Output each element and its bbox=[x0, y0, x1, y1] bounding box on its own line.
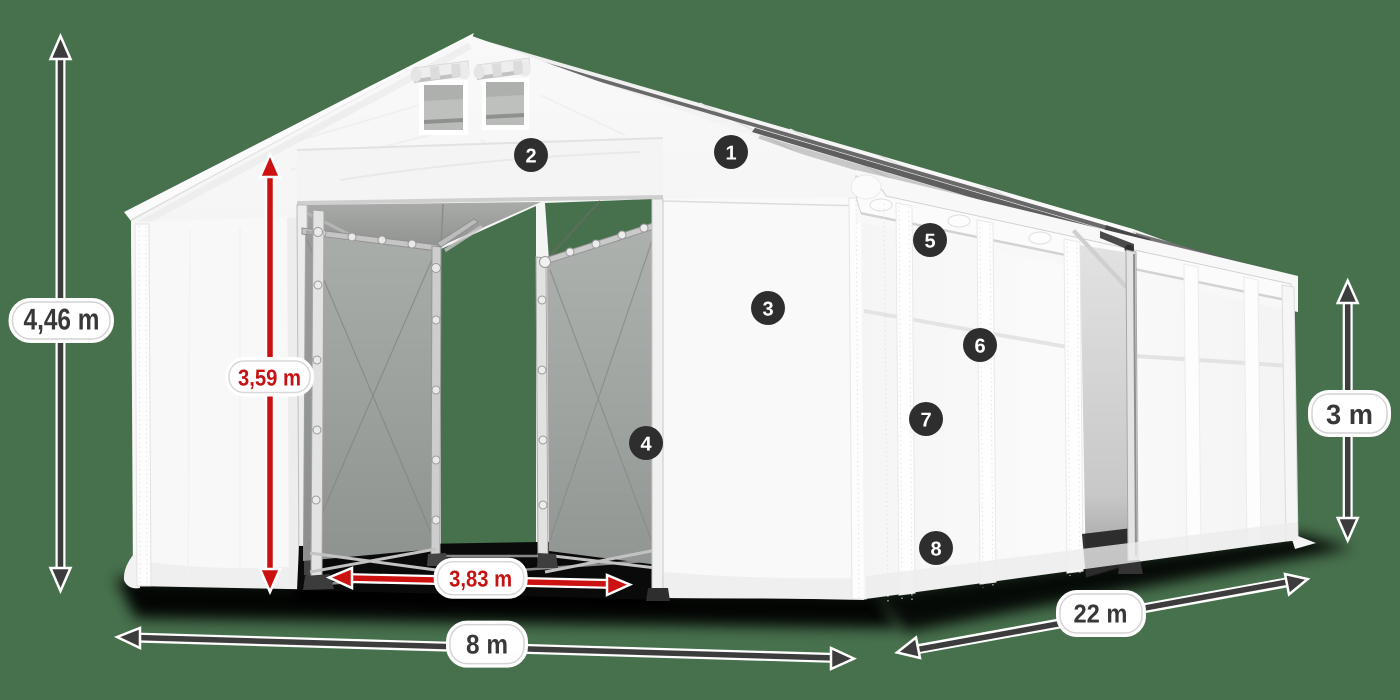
svg-text:8 m: 8 m bbox=[466, 630, 508, 660]
svg-text:8: 8 bbox=[930, 539, 941, 561]
svg-text:3,83 m: 3,83 m bbox=[449, 566, 512, 592]
svg-text:3 m: 3 m bbox=[1326, 399, 1373, 430]
svg-text:5: 5 bbox=[924, 231, 935, 253]
svg-text:2: 2 bbox=[525, 146, 536, 168]
svg-text:1: 1 bbox=[725, 143, 736, 165]
svg-text:3,59 m: 3,59 m bbox=[238, 365, 301, 391]
svg-text:6: 6 bbox=[974, 336, 985, 358]
svg-text:22 m: 22 m bbox=[1074, 599, 1128, 629]
svg-text:4: 4 bbox=[640, 434, 652, 456]
svg-text:3: 3 bbox=[762, 299, 773, 321]
svg-text:4,46 m: 4,46 m bbox=[24, 304, 100, 337]
svg-text:7: 7 bbox=[920, 410, 931, 432]
